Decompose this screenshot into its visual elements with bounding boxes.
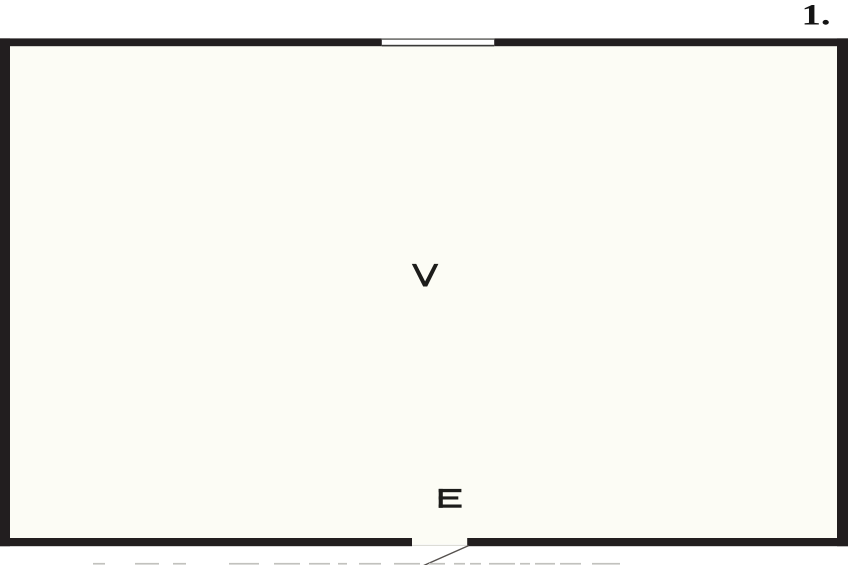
- svg-text:1.: 1.: [802, 0, 831, 32]
